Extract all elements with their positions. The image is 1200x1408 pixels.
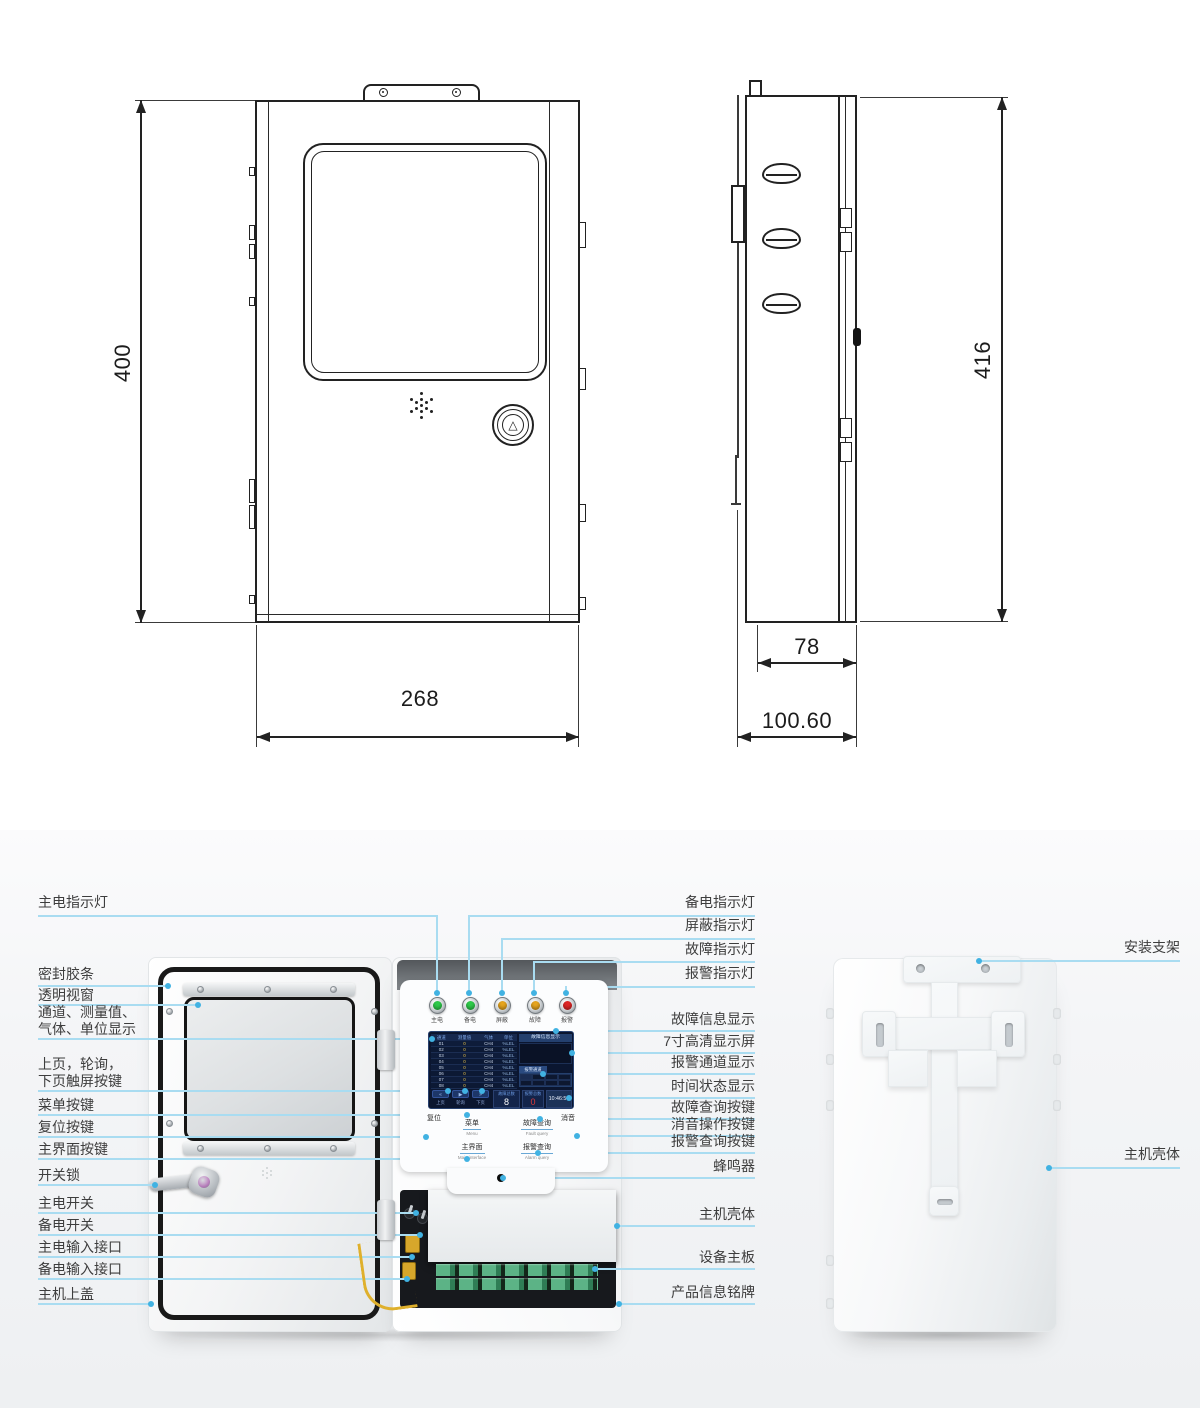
latch-tab [579, 368, 586, 390]
extension-line [578, 625, 579, 747]
indicator-bezel [462, 997, 479, 1014]
callout-top-cover: 主机上盖 [38, 1286, 94, 1303]
backup-power-indicator: 备电 [457, 997, 483, 1024]
dimension-side-total-depth: 100.60 [756, 708, 838, 734]
edge-tab [1053, 1100, 1061, 1111]
hinge-tab [249, 225, 255, 240]
dimension-line-height [140, 100, 142, 623]
bracket-slot [1005, 1023, 1013, 1047]
edge-tab [1053, 1008, 1061, 1019]
callout-reset-button: 复位按键 [38, 1119, 94, 1136]
hinge-tab [249, 297, 255, 306]
door-open-button[interactable]: △ [492, 404, 534, 446]
latch-tab [579, 597, 586, 610]
screw-icon [197, 1145, 204, 1152]
edge-tab [826, 1008, 834, 1019]
latch-tab [579, 222, 586, 248]
alarm-query-button[interactable]: 报警查询 Alarm query [512, 1136, 562, 1160]
bracket-hook [735, 455, 737, 505]
edge-tab [826, 1298, 834, 1309]
callout-transparent-window: 透明视窗 [38, 987, 94, 1004]
dimension-line-depth [758, 662, 856, 664]
hinge-tab [249, 505, 255, 529]
extension-line [135, 100, 257, 101]
bracket-bottom-tab [929, 1186, 959, 1216]
door-seam-left [268, 101, 269, 622]
door-clip [840, 442, 852, 462]
bracket-slot [937, 1199, 953, 1205]
menu-button[interactable]: 菜单 Menu [452, 1112, 492, 1136]
callout-backup-power-switch: 备电开关 [38, 1217, 94, 1234]
screw-icon [330, 986, 337, 993]
hinge [377, 1030, 395, 1070]
callout-buzzer: 蜂鸣器 [713, 1158, 755, 1175]
speaker-grille-icon [420, 404, 423, 407]
bracket-top-tab [749, 80, 762, 97]
edge-tab [826, 1100, 834, 1111]
channel-table-header: 通道 测量值 气体 单位 [431, 1034, 517, 1041]
indicator-bezel [429, 997, 446, 1014]
bracket-hole [916, 964, 925, 973]
extension-line [860, 621, 1008, 622]
screw-icon [197, 986, 204, 993]
fault-indicator: 故障 [522, 997, 548, 1024]
hinge [377, 1200, 395, 1240]
transparent-window [184, 997, 355, 1141]
fault-info-header: 故障信息显示 [519, 1034, 572, 1042]
alarm-indicator: 报警 [554, 997, 580, 1024]
callout-channel-value-display: 通道、测量值、气体、单位显示 [38, 1004, 136, 1038]
front-window [303, 143, 547, 381]
bracket-line [737, 95, 739, 458]
extension-line [860, 97, 1008, 98]
terminal-blocks-row [436, 1278, 598, 1290]
channel-table: 010CH4%LEL020CH4%LEL030CH4%LEL040CH4%LEL… [431, 1041, 517, 1088]
alarm-total-counter: 报警总数 0 [522, 1090, 544, 1108]
door-clip [840, 418, 852, 438]
dimension-side-depth: 78 [772, 634, 842, 660]
door-clip [840, 208, 852, 228]
edge-tab [826, 1054, 834, 1065]
bracket-plate [731, 185, 745, 243]
callout-sealing-strip: 密封胶条 [38, 966, 94, 983]
page: 400 △ 268 [0, 0, 1200, 1408]
edge-tab [826, 1255, 834, 1266]
callout-page-touch-buttons: 上页，轮询，下页触屏按键 [38, 1056, 122, 1090]
dimension-line-width [257, 736, 579, 738]
up-triangle-icon: △ [502, 414, 524, 436]
mounting-bracket-spine [931, 982, 958, 1188]
vent-louver [762, 163, 801, 184]
bracket-foot [731, 503, 741, 505]
indicator-bezel [527, 997, 544, 1014]
callout-mounting-bracket: 安装支架 [1124, 939, 1180, 956]
callout-menu-button: 菜单按键 [38, 1097, 94, 1114]
callout-backup-power-input: 备电输入接口 [38, 1261, 122, 1278]
hd-display-screen[interactable]: 通道 测量值 气体 单位 010CH4%LEL020CH4%LEL030CH4%… [428, 1031, 574, 1109]
screw-icon [330, 1145, 337, 1152]
fault-info-area [519, 1043, 572, 1064]
lock-keyhole [198, 1176, 210, 1188]
screw-icon [166, 1120, 173, 1127]
hinge-tab [249, 167, 255, 176]
terminal-blocks-row [436, 1264, 598, 1276]
door-seam-right [549, 101, 550, 622]
callout-main-power-input: 主电输入接口 [38, 1239, 122, 1256]
bracket-hole [981, 964, 990, 973]
callout-alarm-indicator: 报警指示灯 [685, 965, 755, 982]
indicator-bezel [494, 997, 511, 1014]
screw-icon [264, 986, 271, 993]
dimension-line-total-depth [738, 736, 856, 738]
vent-louver [762, 228, 801, 249]
callout-fault-info-display: 故障信息显示 [671, 1011, 755, 1028]
dimension-front-width: 268 [385, 686, 455, 712]
callout-switch-lock: 开关锁 [38, 1167, 80, 1184]
extension-line [856, 625, 857, 747]
bracket-notch-plate [888, 1050, 928, 1087]
backup-power-switch[interactable] [417, 1213, 428, 1224]
extension-line [256, 625, 257, 747]
callout-backup-power-indicator: 备电指示灯 [685, 894, 755, 911]
callout-product-nameplate: 产品信息铭牌 [671, 1284, 755, 1301]
fault-total-counter: 故障总数 8 [493, 1090, 520, 1108]
extension-line [737, 510, 738, 747]
poll-label: 轮询 [452, 1100, 469, 1106]
door-clip [840, 232, 852, 252]
dimension-front-height: 400 [110, 328, 136, 398]
extension-line [135, 622, 257, 623]
side-button-bump [853, 328, 861, 346]
vent-louver [762, 293, 801, 314]
callout-main-power-switch: 主电开关 [38, 1195, 94, 1212]
inner-grille-icon [266, 1172, 268, 1174]
screw-icon [371, 1120, 378, 1127]
side-door-outline [838, 95, 857, 623]
callout-main-interface-button: 主界面按键 [38, 1141, 108, 1158]
shield-indicator: 屏蔽 [489, 997, 515, 1024]
callout-mute-operation-button: 消音操作按键 [671, 1116, 755, 1133]
screw-icon [166, 1008, 173, 1015]
callout-main-housing: 主机壳体 [699, 1206, 755, 1223]
bracket-screw-icon [452, 88, 461, 97]
bracket-notch-plate [957, 1050, 997, 1087]
callout-fault-indicator: 故障指示灯 [685, 941, 755, 958]
screw-icon [264, 1145, 271, 1152]
dimension-line-side-height [1001, 97, 1003, 622]
indicator-bezel [559, 997, 576, 1014]
next-page-label: 下页 [472, 1100, 489, 1106]
callout-fault-query-button: 故障查询按键 [671, 1099, 755, 1116]
callout-back-housing: 主机壳体 [1124, 1146, 1180, 1163]
hinge-tab [249, 595, 255, 604]
hinge-tab [249, 479, 255, 503]
main-power-indicator: 主电 [424, 997, 450, 1024]
prev-page-label: 上页 [432, 1100, 449, 1106]
bracket-screw-icon [379, 88, 388, 97]
bracket-slot [876, 1023, 884, 1047]
callout-time-status-display: 时间状态显示 [671, 1078, 755, 1095]
bottom-lip-line [257, 614, 578, 615]
inner-cover-plate [428, 1190, 616, 1262]
dimension-side-height: 416 [970, 325, 996, 395]
callout-hd-screen: 7寸高清显示屏 [663, 1033, 755, 1050]
callout-main-power-indicator: 主电指示灯 [38, 894, 108, 911]
reset-button-label: 复位 [414, 1113, 454, 1123]
hinge-tab [249, 244, 255, 259]
screw-icon [371, 1008, 378, 1015]
edge-tab [1053, 1054, 1061, 1065]
door-inner-line [845, 96, 846, 622]
main-interface-button[interactable]: 主界面 Main interface [452, 1136, 492, 1160]
callout-alarm-channel-display: 报警通道显示 [671, 1054, 755, 1071]
callout-device-mainboard: 设备主板 [699, 1249, 755, 1266]
mute-button-label: 消音 [548, 1113, 588, 1123]
latch-tab [579, 504, 586, 522]
callout-shield-indicator: 屏蔽指示灯 [685, 917, 755, 934]
callout-alarm-query-button: 报警查询按键 [671, 1133, 755, 1150]
